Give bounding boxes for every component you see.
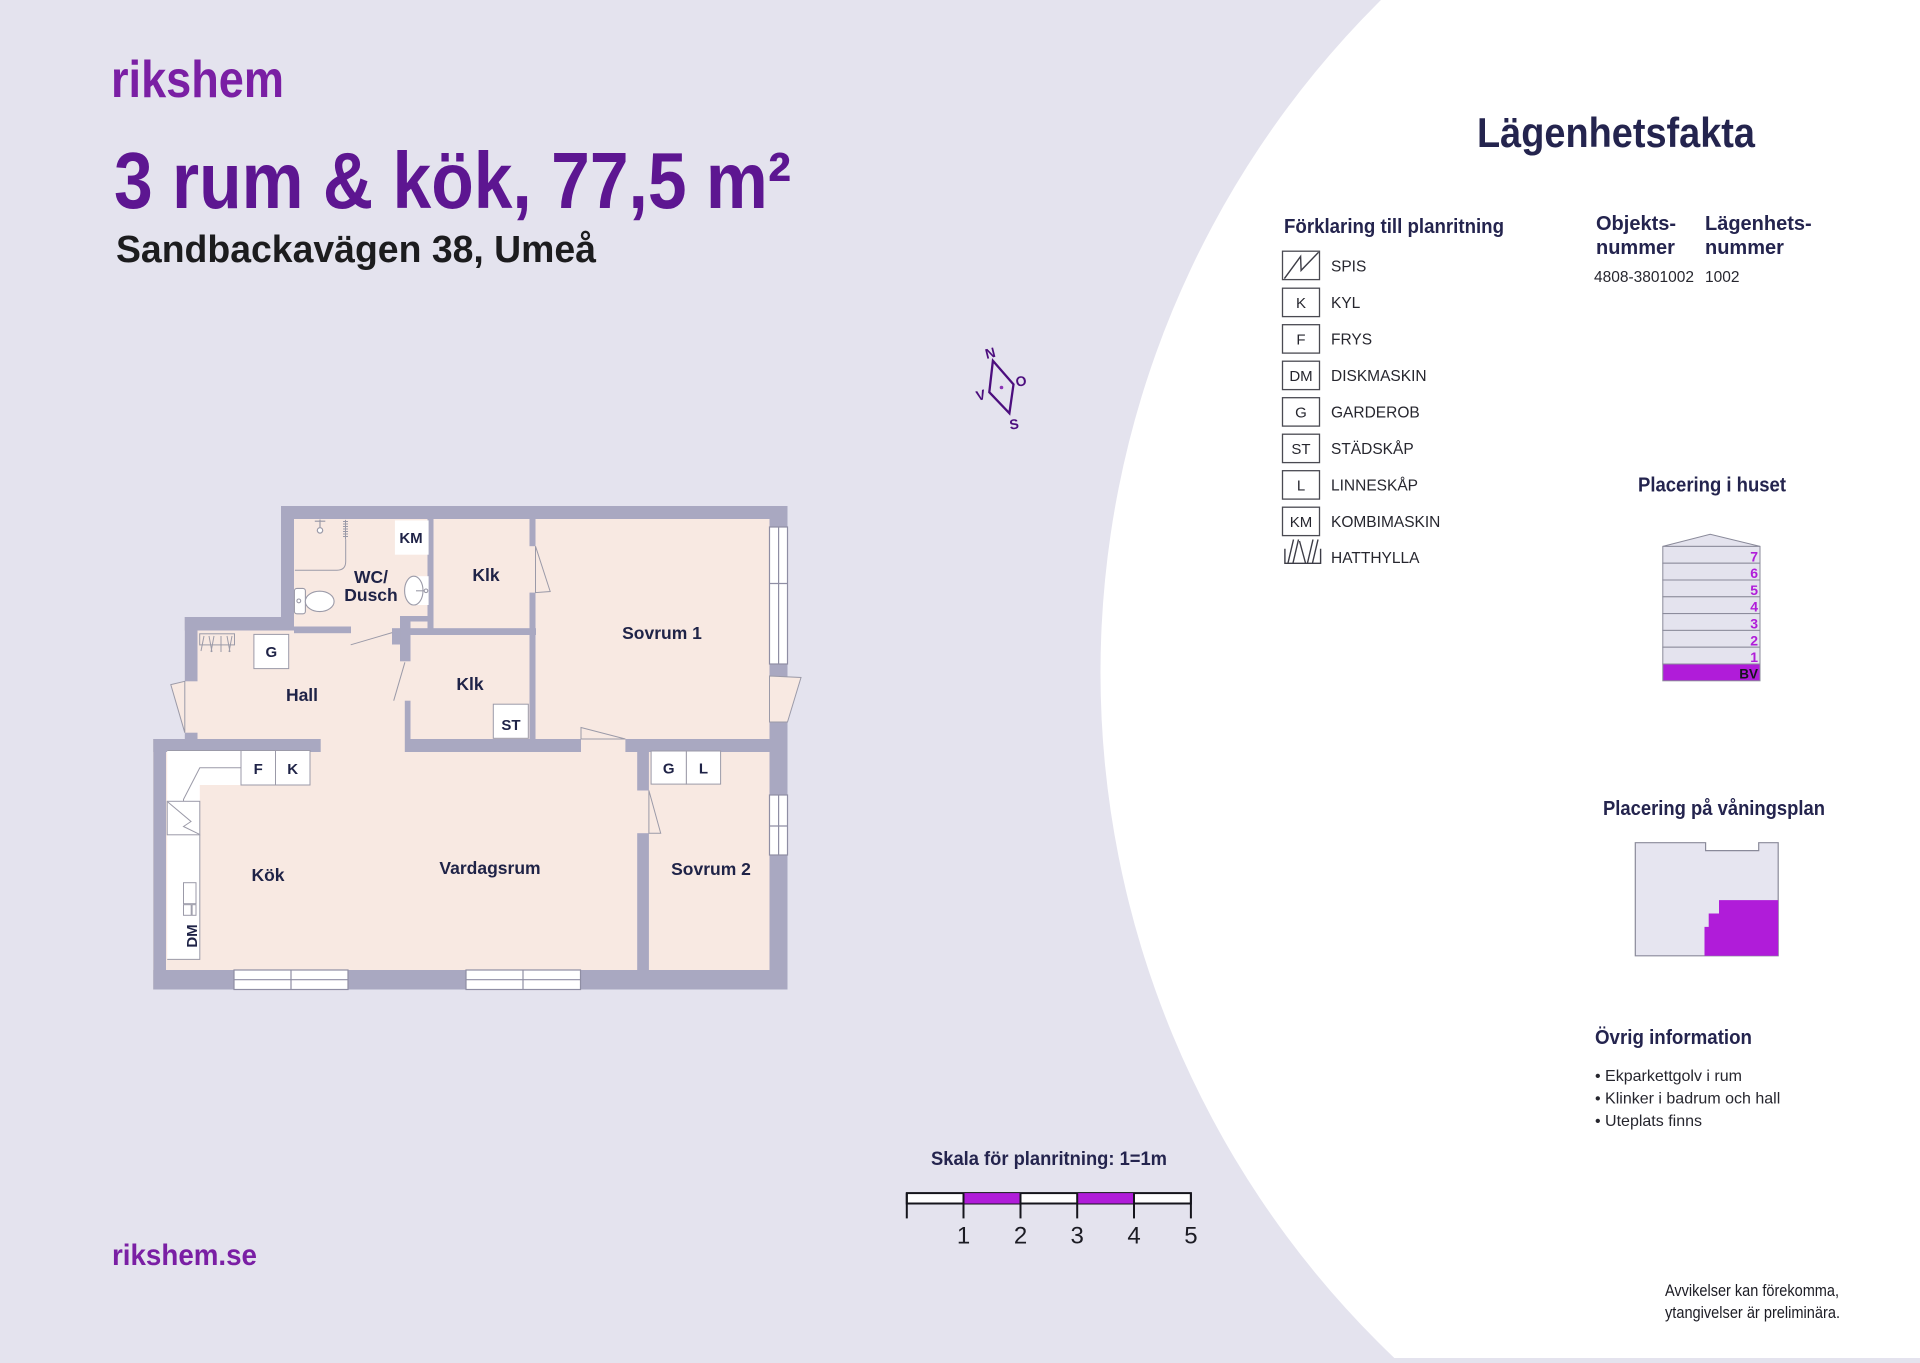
svg-text:LINNESKÅP: LINNESKÅP bbox=[1331, 477, 1418, 494]
svg-text:Dusch: Dusch bbox=[344, 585, 397, 605]
svg-text:F: F bbox=[1296, 331, 1305, 348]
svg-text:• Uteplats finns: • Uteplats finns bbox=[1595, 1113, 1702, 1130]
svg-text:Sandbackavägen 38, Umeå: Sandbackavägen 38, Umeå bbox=[116, 229, 597, 271]
svg-text:4: 4 bbox=[1750, 599, 1758, 615]
svg-text:KYL: KYL bbox=[1331, 295, 1361, 312]
svg-text:rikshem: rikshem bbox=[111, 51, 284, 109]
svg-text:nummer: nummer bbox=[1705, 237, 1784, 259]
svg-text:GARDEROB: GARDEROB bbox=[1331, 404, 1420, 421]
svg-text:HATTHYLLA: HATTHYLLA bbox=[1331, 550, 1420, 567]
svg-text:F: F bbox=[254, 761, 263, 778]
svg-text:6: 6 bbox=[1750, 565, 1758, 581]
svg-text:G: G bbox=[663, 761, 675, 778]
svg-text:STÄDSKÅP: STÄDSKÅP bbox=[1331, 441, 1414, 458]
svg-text:1: 1 bbox=[957, 1223, 970, 1250]
svg-text:Sovrum 1: Sovrum 1 bbox=[622, 623, 702, 643]
svg-text:Objekts-: Objekts- bbox=[1596, 213, 1676, 235]
svg-text:5: 5 bbox=[1184, 1223, 1197, 1250]
svg-text:3: 3 bbox=[1071, 1223, 1084, 1250]
svg-text:G: G bbox=[265, 644, 277, 661]
svg-text:3: 3 bbox=[1750, 616, 1758, 632]
svg-text:Avvikelser kan förekomma,: Avvikelser kan förekomma, bbox=[1665, 1282, 1839, 1300]
svg-text:Sovrum 2: Sovrum 2 bbox=[671, 859, 751, 879]
svg-text:Lägenhetsfakta: Lägenhetsfakta bbox=[1477, 109, 1756, 156]
svg-text:K: K bbox=[287, 761, 298, 778]
svg-text:Hall: Hall bbox=[286, 685, 318, 705]
svg-text:WC/: WC/ bbox=[354, 567, 388, 587]
svg-text:L: L bbox=[1297, 477, 1305, 494]
svg-text:Övrig information: Övrig information bbox=[1595, 1026, 1752, 1049]
svg-text:2: 2 bbox=[1014, 1223, 1027, 1250]
svg-text:Klk: Klk bbox=[456, 674, 484, 694]
svg-text:ST: ST bbox=[501, 717, 520, 734]
svg-text:rikshem.se: rikshem.se bbox=[112, 1239, 257, 1272]
svg-text:5: 5 bbox=[1750, 582, 1758, 598]
svg-text:• Ekparkettgolv i rum: • Ekparkettgolv i rum bbox=[1595, 1068, 1742, 1085]
svg-text:KM: KM bbox=[399, 530, 422, 547]
svg-text:• Klinker i badrum och hall: • Klinker i badrum och hall bbox=[1595, 1091, 1780, 1108]
svg-text:4808-3801002: 4808-3801002 bbox=[1594, 269, 1694, 286]
svg-text:Lägenhets-: Lägenhets- bbox=[1705, 213, 1812, 235]
svg-text:7: 7 bbox=[1750, 548, 1758, 564]
svg-text:L: L bbox=[699, 761, 708, 778]
svg-text:Klk: Klk bbox=[472, 565, 500, 585]
svg-text:SPIS: SPIS bbox=[1331, 258, 1366, 275]
svg-text:3 rum & kök, 77,5 m²: 3 rum & kök, 77,5 m² bbox=[114, 136, 791, 225]
svg-text:4: 4 bbox=[1127, 1223, 1140, 1250]
svg-text:Vardagsrum: Vardagsrum bbox=[439, 858, 540, 878]
svg-text:2: 2 bbox=[1750, 632, 1758, 648]
svg-text:G: G bbox=[1295, 404, 1307, 421]
svg-text:FRYS: FRYS bbox=[1331, 331, 1372, 348]
svg-text:KOMBIMASKIN: KOMBIMASKIN bbox=[1331, 514, 1440, 531]
svg-text:Placering i huset: Placering i huset bbox=[1638, 475, 1786, 497]
svg-text:BV: BV bbox=[1739, 666, 1758, 681]
svg-text:K: K bbox=[1296, 295, 1306, 312]
svg-text:1002: 1002 bbox=[1705, 269, 1739, 286]
svg-text:DM: DM bbox=[1289, 368, 1312, 385]
svg-text:ytangivelser är preliminära.: ytangivelser är preliminära. bbox=[1665, 1304, 1840, 1322]
svg-text:DISKMASKIN: DISKMASKIN bbox=[1331, 368, 1427, 385]
svg-text:Skala för planritning: 1=1m: Skala för planritning: 1=1m bbox=[931, 1149, 1167, 1170]
svg-text:ST: ST bbox=[1291, 441, 1310, 458]
svg-text:1: 1 bbox=[1750, 649, 1758, 665]
svg-text:Förklaring till planritning: Förklaring till planritning bbox=[1284, 216, 1504, 238]
svg-text:nummer: nummer bbox=[1596, 237, 1675, 259]
svg-text:Placering på våningsplan: Placering på våningsplan bbox=[1603, 797, 1825, 820]
svg-text:KM: KM bbox=[1290, 514, 1313, 531]
svg-text:Kök: Kök bbox=[251, 865, 284, 885]
svg-text:DM: DM bbox=[184, 924, 201, 947]
